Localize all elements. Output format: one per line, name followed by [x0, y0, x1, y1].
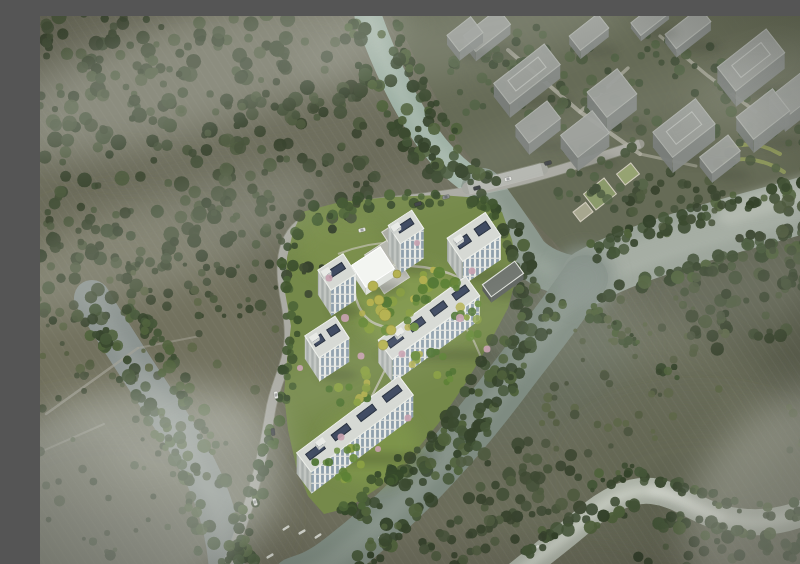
scene-canvas	[40, 16, 800, 564]
atmosphere	[40, 16, 800, 564]
aerial-rendering	[40, 16, 800, 564]
vignette	[40, 16, 800, 564]
